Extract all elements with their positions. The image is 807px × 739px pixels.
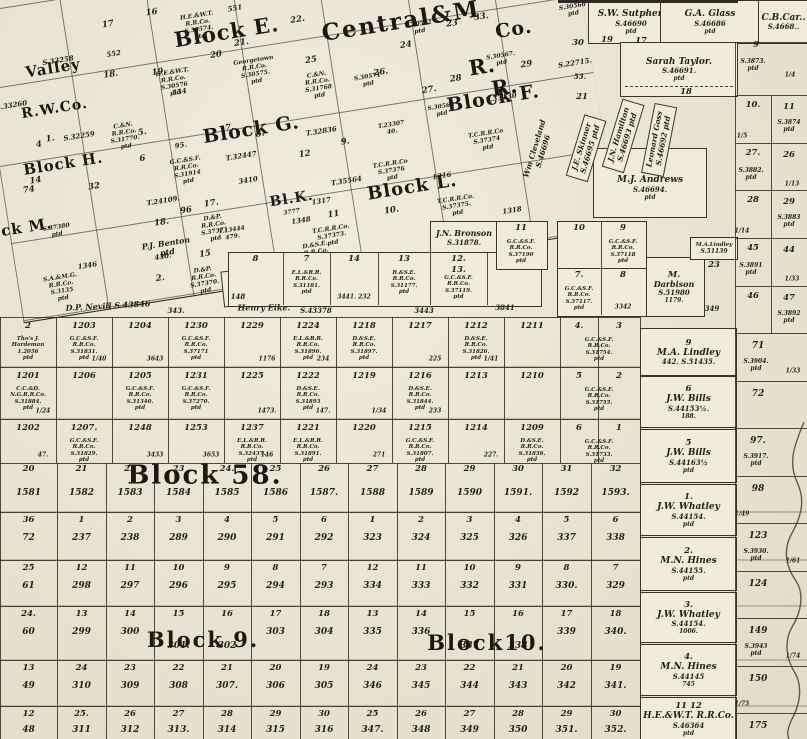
block-label: Block 58.	[127, 461, 282, 490]
lot-number: 7.	[575, 271, 584, 281]
tract-number: 296	[169, 581, 188, 591]
tract-number: 348	[412, 725, 431, 735]
lot-number: 28	[449, 74, 462, 85]
fraction-label: 225	[429, 357, 442, 364]
tract-number: 334	[363, 581, 382, 591]
lot-number: 6	[139, 154, 146, 164]
survey-annotation: G.C.&S.F. R.R.Co. S.37270. ptd	[182, 386, 211, 412]
fraction-label: 1/75	[735, 702, 750, 709]
grid-line	[445, 463, 446, 512]
lot-number: 1205	[128, 372, 152, 382]
grid-line	[392, 317, 393, 463]
lot-number: 97.	[750, 436, 766, 446]
grid-line	[348, 512, 349, 739]
plat-map: Block E.Central&MR.R.Co.Block G.Block H.…	[0, 0, 807, 739]
lot-number: 4.	[684, 652, 693, 662]
lot-number: 5	[564, 516, 570, 526]
tract-number: 335	[363, 627, 382, 637]
tract-number: 312	[121, 725, 140, 735]
survey-annotation: C.&N. R.R.Co. S.31770. ptd	[108, 120, 141, 153]
lot-number: 18	[318, 610, 330, 620]
tract-number: 324	[412, 533, 431, 543]
lot-number: 44	[783, 246, 795, 256]
fraction-label: 3433	[147, 453, 164, 460]
lot-number: 123	[749, 531, 768, 541]
grid-line	[0, 706, 640, 707]
grid-line	[0, 419, 640, 420]
lot-number: 6	[321, 516, 327, 526]
lot-number: 7	[304, 255, 310, 265]
lot-number: 19	[318, 664, 330, 674]
grid-line	[591, 463, 592, 512]
owner-box-cb-carter: C.B.Car..S.4668..	[758, 0, 807, 44]
lot-number: 7	[613, 564, 619, 574]
survey-box: 11 12H.E.&W.T. R.R.Co.S.46364ptd	[640, 697, 737, 739]
owner-box-ma-lindley-small: M.A.LindleyS.51139	[690, 237, 738, 260]
lot-number: 1237	[240, 424, 264, 434]
grid-line	[397, 463, 398, 512]
grid-line	[735, 523, 807, 524]
tract-number: 72	[22, 533, 35, 543]
lot-number: 71	[752, 341, 765, 351]
lot-number: 8	[273, 564, 279, 574]
lot-number: 2	[616, 372, 622, 382]
lot-number: 1.	[45, 134, 55, 145]
lot-number: 124	[749, 579, 768, 589]
lot-number: 4	[515, 516, 521, 526]
lot-number: 21	[576, 93, 588, 103]
tract-number: 305	[315, 681, 334, 691]
lot-number: 1217	[408, 322, 432, 332]
lot-number: 27.	[746, 149, 761, 159]
lot-number: 6	[686, 384, 692, 394]
fraction-label: 1/74	[786, 654, 801, 661]
survey-annotation: 745	[682, 681, 695, 688]
grid-line	[57, 512, 58, 739]
survey-annotation: S.3882. ptd	[739, 167, 764, 181]
lot-number: 11	[515, 224, 527, 234]
lot-number: 14	[348, 255, 360, 265]
survey-box: 6J.W. BillsS.44153½.188.	[640, 376, 737, 428]
lot-number: 1	[370, 516, 376, 526]
tract-number: 339	[557, 627, 576, 637]
owner-box-jn-bronson: J.N. BronsonS.31878.	[430, 221, 498, 255]
lot-number: 30	[610, 710, 622, 720]
lot-number: 9	[224, 564, 230, 574]
lot-number: 1253	[184, 424, 208, 434]
grid-line	[56, 317, 57, 463]
lot-number: 20	[270, 664, 282, 674]
owner-name: D.P. Nevill S.43846	[65, 299, 150, 312]
lot-number: 1213	[464, 372, 488, 382]
grid-line	[735, 95, 807, 96]
tract-number: 311	[72, 725, 91, 735]
grid-line	[494, 512, 495, 739]
grid-line	[0, 463, 1, 512]
lot-number: 12	[23, 710, 35, 720]
fraction-label: 1/40	[92, 357, 107, 364]
survey-annotation: 148	[231, 293, 246, 301]
tract-number: 238	[121, 533, 140, 543]
lot-number: 26	[318, 465, 330, 475]
lot-number: 1222	[296, 372, 320, 382]
lot-number: 8.	[255, 129, 265, 140]
lot-number: 3	[467, 516, 473, 526]
lot-number: 12	[76, 564, 88, 574]
tract-number: 1593.	[601, 488, 629, 498]
lot-number: 98	[752, 484, 765, 494]
lot-number: 18	[680, 88, 692, 98]
tract-number: 1588	[360, 488, 385, 498]
survey-annotation: S.3917. ptd	[744, 453, 769, 467]
survey-annotation: S.51980	[658, 289, 690, 297]
lot-number: 5	[576, 372, 582, 382]
lot-number: 26	[783, 151, 795, 161]
tract-number: 306	[266, 681, 285, 691]
lot-number: 7.	[225, 123, 235, 134]
lot-number: 5.	[137, 128, 147, 139]
lot-number: 1216	[408, 372, 432, 382]
grid-line	[397, 512, 398, 739]
lot-number: 26	[124, 710, 136, 720]
tract-number: 343	[509, 681, 528, 691]
lot-number: 27	[173, 710, 185, 720]
tract-number: 60	[22, 627, 35, 637]
grid-line	[560, 317, 561, 463]
lot-number: 1204	[128, 322, 152, 332]
survey-annotation: 188.	[681, 413, 696, 420]
survey-annotation: D.&P. R.R.Co. S.37370. ptd	[188, 264, 221, 297]
lot-number: 24	[76, 664, 88, 674]
grid-line	[771, 95, 772, 334]
lot-number: 96	[180, 206, 193, 217]
lot-number: 10.	[746, 101, 761, 111]
survey-annotation: 1006.	[679, 628, 698, 635]
survey-annotation: G.C.&S.F. R.R.Co. S.37190 ptd	[507, 239, 536, 265]
lot-number: 32	[88, 182, 101, 193]
map-edge-mark	[558, 0, 738, 3]
grid-line	[0, 512, 640, 513]
survey-annotation: G.C.&S.F. R.R.Co. S.37117. ptd	[565, 286, 594, 312]
tract-number: 315	[266, 725, 285, 735]
survey-annotation: S.44153½.	[668, 405, 709, 413]
grid-line	[112, 317, 113, 463]
lot-number: 20	[23, 465, 35, 475]
lot-number: 30	[512, 465, 524, 475]
tract-number: 325	[460, 533, 479, 543]
tract-number: 307.	[216, 681, 238, 691]
survey-annotation: S.46694.	[633, 186, 667, 194]
tract-number: 329	[606, 581, 625, 591]
lot-number: 8	[253, 255, 259, 265]
lot-number: 9	[686, 338, 692, 348]
lot-number: 1215	[408, 424, 432, 434]
lot-number: 1225	[240, 372, 264, 382]
lot-number: 21	[76, 465, 88, 475]
lot-number: 6	[576, 424, 582, 434]
lot-number: 29	[520, 60, 533, 71]
tract-number: 331	[509, 581, 528, 591]
fraction-label: 1/33	[785, 277, 800, 284]
survey-annotation: G.C.&S.F. R.R.Co. S.31733. ptd	[585, 439, 614, 465]
survey-annotation: S.44154.	[671, 620, 705, 628]
lot-number: 1.	[684, 492, 693, 502]
grid-line	[251, 512, 252, 739]
lot-number: 3	[176, 516, 182, 526]
grid-line	[735, 143, 807, 144]
lot-number: 13	[76, 610, 88, 620]
fraction-label: 1/33	[786, 369, 801, 376]
lot-number: 10	[573, 224, 585, 234]
lot-number: 1	[616, 424, 622, 434]
grid-line	[542, 463, 543, 512]
lot-number: 13	[367, 610, 379, 620]
survey-annotation: 1179.	[665, 297, 684, 304]
tract-number: 1589	[408, 488, 433, 498]
grid-line	[348, 463, 349, 512]
grid-line	[601, 268, 602, 315]
survey-annotation: G.C.&S.F. R.R.Co. S.31340. ptd	[126, 386, 155, 412]
lot-number: 1218	[352, 322, 376, 332]
grid-line	[735, 238, 807, 239]
grid-line	[300, 512, 301, 739]
grid-line	[735, 381, 807, 382]
grid-line	[0, 606, 640, 607]
lot-number: 4.	[575, 322, 584, 332]
lot-number: 23	[708, 261, 720, 271]
fraction-label: 1/61	[786, 559, 801, 566]
tract-number: 304	[315, 627, 334, 637]
survey-annotation: 349	[705, 305, 720, 313]
lot-number: 11	[124, 564, 136, 574]
lot-number: 11 12	[675, 701, 702, 711]
lot-number: 10	[464, 564, 476, 574]
survey-annotation: 343.	[167, 307, 184, 315]
lot-number: 16	[512, 610, 524, 620]
grid-line	[494, 463, 495, 512]
lot-number: 72	[752, 389, 765, 399]
lot-number: 21	[512, 664, 524, 674]
survey-box: 4.M.N. HinesS.44145745	[640, 644, 737, 696]
lot-number: 28	[747, 196, 759, 206]
grid-line	[735, 618, 807, 619]
block-label: Block 9.	[147, 628, 259, 652]
survey-annotation: G.C.&S.F. R.R.Co. S.31829. ptd	[70, 438, 99, 464]
survey-annotation: S.3943 ptd	[745, 643, 768, 657]
lot-number: 2	[127, 516, 133, 526]
grid-line	[591, 512, 592, 739]
tract-number: 332	[460, 581, 479, 591]
lot-number: 9	[620, 224, 626, 234]
lot-number: 12	[298, 150, 311, 161]
grid-line	[0, 512, 1, 739]
lot-number: 5	[686, 438, 692, 448]
survey-annotation: G.C.&S.F. R.R.Co. S.37119. ptd	[444, 275, 473, 301]
tract-number: 345	[412, 681, 431, 691]
block-label: Block10.	[427, 631, 547, 655]
lot-number: 17	[635, 37, 647, 47]
survey-annotation: S.3873. ptd	[741, 58, 766, 72]
grid-line	[735, 666, 807, 667]
lot-number: 7	[321, 564, 327, 574]
lot-number: 25	[367, 710, 379, 720]
tract-number: 330.	[556, 581, 578, 591]
survey-annotation: S.31878.	[447, 239, 481, 247]
tract-number: 1581	[16, 488, 41, 498]
grid-line	[735, 42, 807, 43]
lot-number: 27	[464, 710, 476, 720]
fraction-label: 3441. 232	[337, 295, 370, 302]
tract-number: 1582	[69, 488, 94, 498]
survey-annotation: S.3904. ptd	[744, 358, 769, 372]
fraction-label: 1473.	[258, 409, 277, 416]
survey-box: 9M.A. Lindley442. S.51435.	[640, 328, 737, 376]
fraction-label: 3342	[615, 305, 632, 312]
grid-line	[542, 512, 543, 739]
owner-box-ga-glass: G.A. GlassS.46686ptd	[660, 0, 760, 44]
grid-line	[504, 317, 505, 463]
lot-number: 2.	[155, 274, 165, 285]
survey-box: 3.J.W. WhatleyS.44154.1006.	[640, 592, 737, 643]
fraction-label: 1/13	[785, 182, 800, 189]
lot-number: 15	[199, 249, 212, 260]
tract-number: 293	[315, 581, 334, 591]
fraction-label: 1/14	[735, 229, 750, 236]
tract-number: 1592	[554, 488, 579, 498]
fraction-label: 47.	[38, 453, 48, 460]
lot-number: 31	[561, 465, 573, 475]
lot-number: 30	[318, 710, 330, 720]
fraction-label: 1/4	[785, 73, 796, 80]
fraction-label: 227.	[484, 453, 499, 460]
fraction-label: 1176	[259, 357, 276, 364]
fraction-label: 3653	[203, 453, 220, 460]
lot-number: 8	[620, 271, 626, 281]
lot-number: 20	[561, 664, 573, 674]
fraction-label: 1/41	[484, 357, 499, 364]
lot-number: 2.	[684, 546, 693, 556]
tract-number: 49	[22, 681, 35, 691]
lot-number: 6	[613, 516, 619, 526]
tract-number: 294	[266, 581, 285, 591]
lot-number: 1248	[128, 424, 152, 434]
survey-annotation: S.51139	[700, 248, 727, 255]
tract-number: 297	[121, 581, 140, 591]
lot-number: 17	[561, 610, 573, 620]
survey-annotation: G.C.&S.F. R.R.Co. S.31755. ptd	[585, 387, 614, 413]
survey-annotation: S.3930. ptd	[744, 548, 769, 562]
lot-number: 15	[173, 610, 185, 620]
grid-line	[445, 512, 446, 739]
lot-number: 5	[273, 516, 279, 526]
survey-annotation: D.&S.E. R.R.Co. S.31897. ptd	[351, 336, 378, 362]
tract-number: 48	[22, 725, 35, 735]
tract-number: 303	[266, 627, 285, 637]
survey-annotation: S.43378	[300, 307, 332, 315]
lot-number: 175	[749, 721, 768, 731]
survey-annotation: S.A.&M.G. R.R.Co. S.3135 ptd	[43, 271, 81, 304]
survey-annotation: 95.	[174, 141, 187, 151]
fraction-label: 271	[373, 453, 386, 460]
tract-number: 337	[557, 533, 576, 543]
lot-number: 1230	[184, 322, 208, 332]
lot-number: 1210	[520, 372, 544, 382]
survey-annotation: ptd	[704, 28, 715, 35]
survey-annotation: G.C.&S.F. R.R.Co. S.37118 ptd	[609, 239, 638, 265]
survey-annotation: 442. S.51435.	[662, 358, 716, 366]
survey-annotation: Tho's J. Hardeman 1.2056 ptd	[12, 336, 44, 362]
grid-line	[330, 252, 331, 305]
tract-number: 1587.	[310, 488, 338, 498]
tract-number: 1590	[457, 488, 482, 498]
lot-number: 150	[749, 674, 768, 684]
grid-line	[487, 252, 488, 305]
owner-box-sarah-taylor: Sarah Taylor.S.46691.ptd	[620, 42, 738, 97]
lot-number: 27	[367, 465, 379, 475]
tract-number: 299	[72, 627, 91, 637]
tract-number: 349	[460, 725, 479, 735]
grid-line	[0, 660, 640, 661]
lot-number: 32	[610, 465, 622, 475]
survey-annotation: S.3883 ptd	[778, 214, 801, 228]
lot-number: 16	[221, 610, 233, 620]
lot-number: 14	[29, 176, 42, 187]
lot-number: 1220	[352, 424, 376, 434]
tract-number: 295	[218, 581, 237, 591]
lot-number: 25.	[74, 710, 89, 720]
lot-number: 26	[415, 710, 427, 720]
survey-annotation: ptd	[683, 575, 694, 582]
tract-number: 292	[315, 533, 334, 543]
lot-number: 1224	[296, 322, 320, 332]
lot-number: 9	[515, 564, 521, 574]
tract-number: 300	[121, 627, 140, 637]
lot-number: 29	[783, 198, 795, 208]
survey-box: 1.J.W. WhatleyS.44154.ptd	[640, 484, 737, 536]
tract-number: 342	[557, 681, 576, 691]
lot-number: 1206	[72, 372, 96, 382]
lot-number: 15	[464, 610, 476, 620]
tract-number: 350	[509, 725, 528, 735]
lot-number: 19	[601, 36, 613, 46]
tract-number: 347.	[362, 725, 384, 735]
grid-line	[0, 560, 640, 561]
survey-annotation: E.L.&R.R. R.R.Co. S.31181. ptd	[292, 270, 322, 296]
fraction-label: 1/24	[36, 409, 51, 416]
tract-number: 326	[509, 533, 528, 543]
lot-number: 13	[398, 255, 410, 265]
lot-number: 36	[23, 516, 35, 526]
survey-annotation: ptd	[683, 521, 694, 528]
grid-line	[378, 252, 379, 305]
grid-line	[300, 463, 301, 512]
grid-line	[280, 317, 281, 463]
survey-annotation: E.L.&R.R. R.R.Co. S.31891. ptd	[293, 438, 323, 464]
tract-number: 333	[412, 581, 431, 591]
survey-annotation: S.3891 ptd	[740, 262, 763, 276]
survey-annotation: 3443	[414, 307, 433, 315]
lot-number: 14	[415, 610, 427, 620]
grid-line	[106, 512, 107, 739]
survey-annotation: S.3874 ptd	[778, 119, 801, 133]
grid-line	[283, 252, 284, 305]
lot-number: 1211	[520, 322, 544, 332]
tract-number: 314	[218, 725, 237, 735]
lot-number: 1231	[184, 372, 208, 382]
fraction-label: 234	[317, 357, 330, 364]
survey-annotation: 3841	[495, 304, 514, 312]
lot-number: 9.	[340, 137, 350, 148]
